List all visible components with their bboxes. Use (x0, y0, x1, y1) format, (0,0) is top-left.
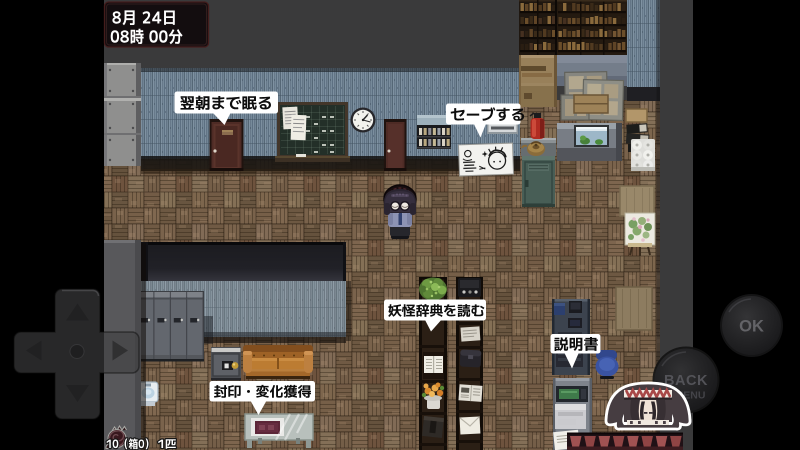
svg-text:OK: OK (739, 318, 764, 336)
